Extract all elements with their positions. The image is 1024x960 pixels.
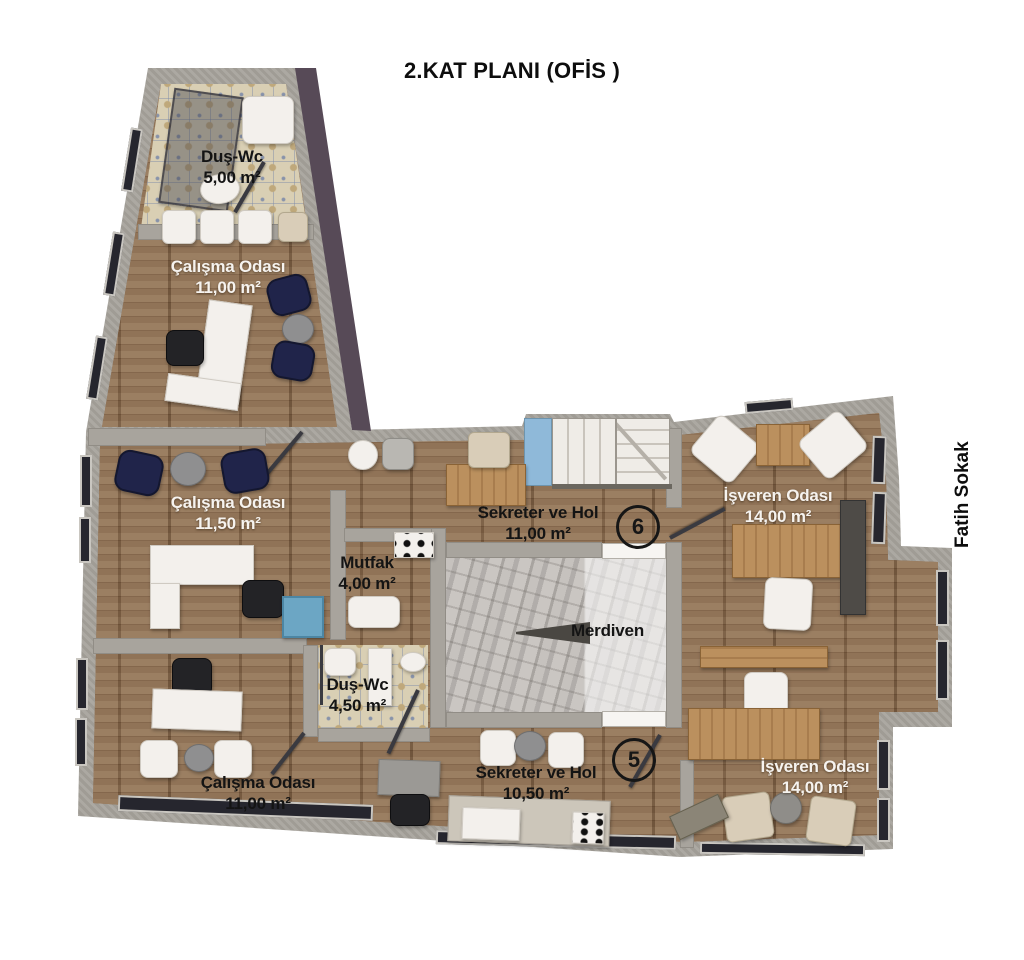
guest-chair-3 — [480, 730, 516, 766]
desk-isveren-top — [732, 524, 844, 578]
basin-blue — [282, 596, 324, 638]
street-name-label: Fatih Sokak — [952, 408, 974, 548]
window-left-4 — [75, 718, 87, 766]
window-right-2 — [871, 492, 887, 544]
room-number-badge-6: 6 — [616, 505, 660, 549]
wall-calisma-mid-bottom — [93, 638, 307, 654]
window-right-1 — [871, 436, 887, 484]
label-calisma-top: Çalışma Odası 11,00 m² — [138, 256, 318, 299]
room-name: Çalışma Odası — [138, 492, 318, 513]
sink-3 — [238, 210, 272, 244]
sink-2 — [200, 210, 234, 244]
hall-door-bottom — [602, 711, 666, 727]
counter-basket — [278, 212, 308, 242]
room-area: 14,00 m² — [690, 506, 866, 527]
room-name: İşveren Odası — [725, 756, 905, 777]
side-table-mid — [170, 452, 206, 486]
armchair-navy-4 — [219, 446, 272, 495]
label-dus-wc-mid: Duş-Wc 4,50 m² — [300, 674, 415, 717]
armchair-beige-2 — [805, 795, 857, 847]
room-area: 4,50 m² — [300, 695, 415, 716]
label-merdiven: Merdiven — [545, 620, 670, 641]
window-left-3 — [76, 658, 88, 710]
stair-straight-flight — [552, 418, 616, 486]
sink-mutfak — [348, 596, 400, 628]
window-left-2 — [79, 517, 91, 563]
label-sekreter-top: Sekreter ve Hol 11,00 m² — [452, 502, 624, 545]
chair-sekreter-top — [468, 432, 510, 468]
label-calisma-bottom: Çalışma Odası 11,00 m² — [168, 772, 348, 815]
chair-gray-hol — [382, 438, 414, 470]
floor-plan-canvas: 2.KAT PLANI (OFİS ) Fatih Sokak — [0, 0, 1024, 960]
label-mutfak: Mutfak 4,00 m² — [323, 552, 411, 595]
room-area: 14,00 m² — [725, 777, 905, 798]
office-chair-wing — [166, 330, 204, 366]
shower-tray — [242, 96, 294, 144]
wall-bathroom-mid-bottom — [318, 728, 430, 742]
window-corridor-1 — [936, 570, 949, 626]
side-table-bottom-left — [184, 744, 214, 772]
kitchenette-sink — [461, 807, 520, 841]
room-area: 4,00 m² — [323, 573, 411, 594]
room-name: Çalışma Odası — [168, 772, 348, 793]
sink-1 — [162, 210, 196, 244]
label-dus-wc-top: Duş-Wc 5,00 m² — [152, 146, 312, 189]
wall-central-vertical — [430, 528, 446, 728]
room-name: Mutfak — [323, 552, 411, 573]
room-name: Duş-Wc — [152, 146, 312, 167]
label-isveren-bottom: İşveren Odası 14,00 m² — [725, 756, 905, 799]
room-number-badge-5: 5 — [612, 738, 656, 782]
round-table-hol — [348, 440, 378, 470]
room-area: 5,00 m² — [152, 167, 312, 188]
room-name: Sekreter ve Hol — [450, 762, 622, 783]
room-area: 11,50 m² — [138, 513, 318, 534]
room-name: Çalışma Odası — [138, 256, 318, 277]
wall-wing-junction — [88, 428, 266, 446]
room-name: Duş-Wc — [300, 674, 415, 695]
desk-calisma-bottom — [151, 688, 242, 731]
desk-gray-hol — [377, 759, 440, 797]
office-chair-hol — [390, 794, 430, 826]
room-area: 11,00 m² — [452, 523, 624, 544]
toilet-mid — [400, 652, 426, 672]
room-name: İşveren Odası — [690, 485, 866, 506]
side-table-wing — [282, 314, 314, 344]
office-chair-isveren-top — [763, 577, 814, 631]
room-area: 11,00 m² — [138, 277, 318, 298]
desk-sekreter-top — [446, 464, 526, 506]
desk-calisma-mid — [150, 545, 254, 585]
sideboard-isveren-bottom — [700, 646, 828, 668]
room-area: 10,50 m² — [450, 783, 622, 804]
stair-winder-flight — [616, 418, 670, 486]
side-table-hol-bottom — [514, 731, 546, 761]
window-left-1 — [80, 455, 92, 507]
label-sekreter-bottom: Sekreter ve Hol 10,50 m² — [450, 762, 622, 805]
stair-landing — [524, 418, 552, 486]
desk-isveren-bottom — [688, 708, 820, 760]
room-area: 11,00 m² — [168, 793, 348, 814]
stair-railing — [552, 484, 672, 489]
plan-title: 2.KAT PLANI (OFİS ) — [312, 58, 712, 84]
kitchenette-cooktop — [571, 811, 604, 844]
room-name: Merdiven — [545, 620, 670, 641]
label-calisma-mid: Çalışma Odası 11,50 m² — [138, 492, 318, 535]
office-chair-mid — [242, 580, 284, 618]
shower-tray-mid — [324, 648, 356, 676]
label-isveren-top: İşveren Odası 14,00 m² — [690, 485, 866, 528]
window-right-4 — [877, 798, 890, 842]
armchair-navy-2 — [269, 339, 317, 384]
desk-calisma-mid-return — [150, 583, 180, 629]
wall-hall-bottom — [446, 712, 602, 728]
room-name: Sekreter ve Hol — [452, 502, 624, 523]
window-corridor-2 — [936, 640, 949, 700]
